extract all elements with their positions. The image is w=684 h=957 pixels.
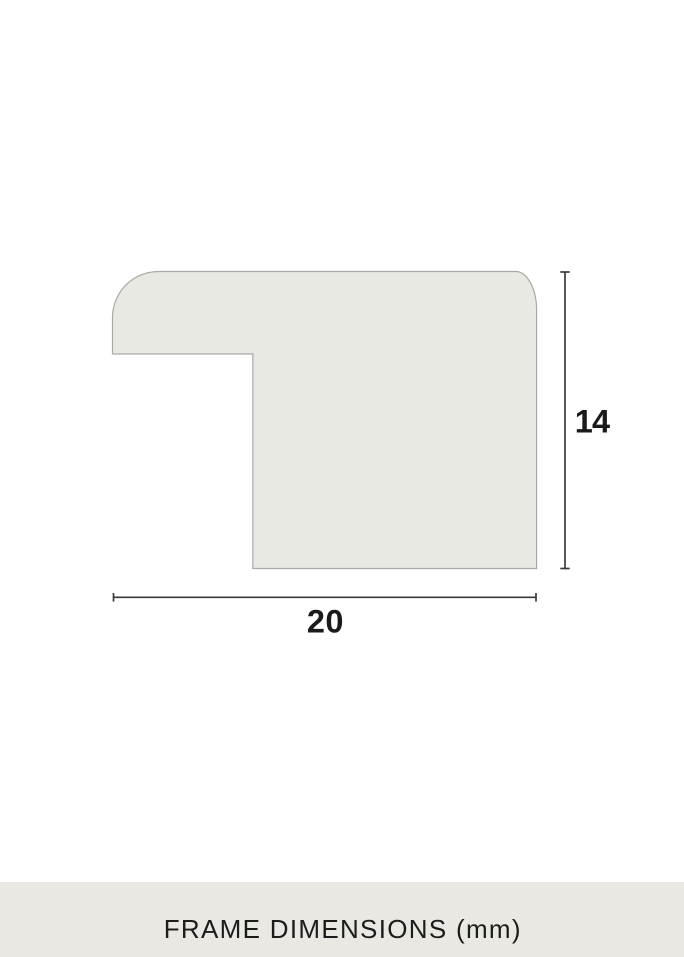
- svg-text:FRAME DIMENSIONS (mm): FRAME DIMENSIONS (mm): [164, 914, 522, 944]
- svg-text:20: 20: [307, 603, 344, 639]
- svg-text:14: 14: [575, 403, 610, 439]
